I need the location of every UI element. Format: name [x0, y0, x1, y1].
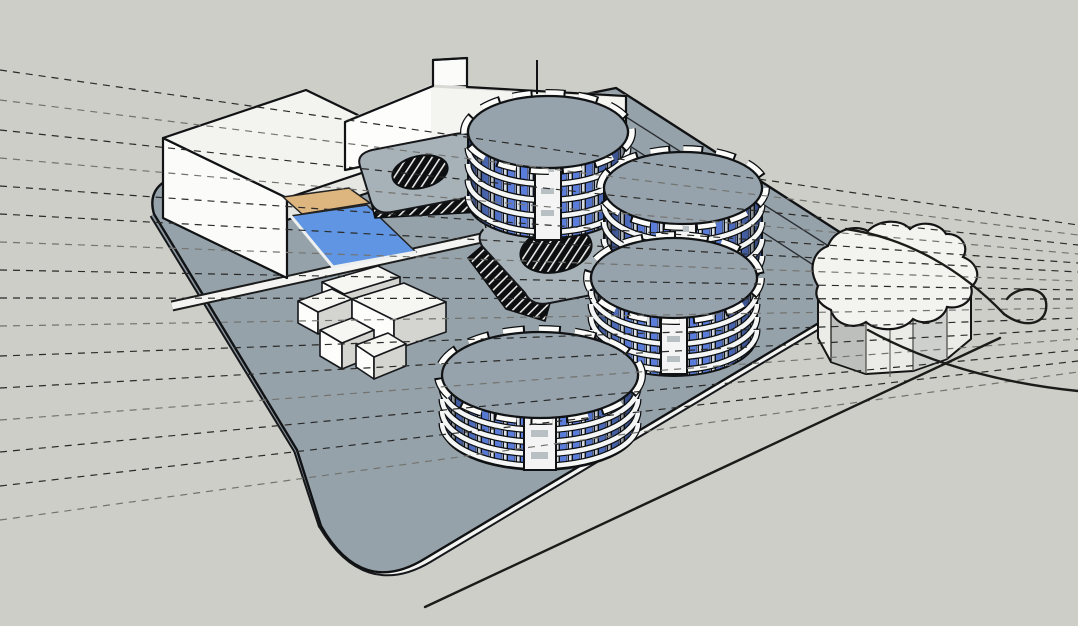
bar-roof-notch [433, 58, 467, 88]
stair-window [667, 356, 680, 362]
stair-window [531, 430, 548, 437]
tower-roof [442, 332, 638, 418]
round-tower-south[interactable] [438, 329, 642, 475]
tower-roof [591, 238, 757, 318]
stair-window [667, 336, 680, 342]
model-viewport[interactable] [0, 0, 1078, 626]
stair-window [531, 452, 548, 459]
stair-window [541, 210, 554, 216]
model-canvas[interactable] [0, 0, 1078, 626]
tower-roof [604, 152, 762, 224]
tower-roof [468, 96, 628, 168]
